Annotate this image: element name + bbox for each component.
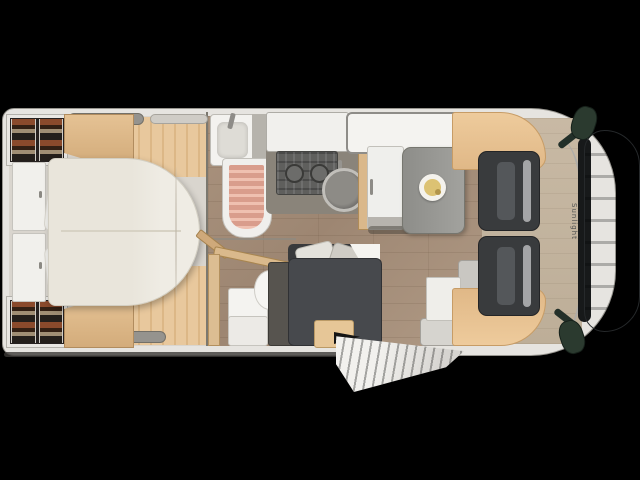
- plate-food-detail: [435, 189, 441, 195]
- seat-cushion: [497, 162, 515, 220]
- shower-mat: [229, 165, 264, 229]
- seat-cushion: [497, 247, 515, 305]
- plate-food: [424, 179, 441, 196]
- bathroom-partition-wall: [208, 238, 296, 240]
- island-bed: [48, 158, 200, 306]
- roof-window-icon: [150, 114, 208, 124]
- kitchen-worktop: [266, 112, 349, 152]
- cabinet-handle-icon: [39, 262, 42, 269]
- body-shadow-skirt: [4, 352, 340, 357]
- wardrobe-clothes: [10, 118, 64, 162]
- headboard-cabinet-top: [12, 162, 46, 231]
- toilet-side-shelf: [208, 254, 220, 346]
- plate: [419, 174, 446, 201]
- shower-tray: [222, 158, 272, 238]
- cabinet-handle-icon: [370, 179, 373, 195]
- seat-headrest: [523, 245, 531, 307]
- passenger-seat: [478, 236, 540, 316]
- headboard-cabinet-bottom: [12, 233, 46, 302]
- driver-seat: [478, 151, 540, 231]
- toilet-base: [228, 316, 268, 346]
- duvet-fold: [175, 167, 177, 297]
- bed-seam: [61, 230, 181, 232]
- brand-lettering: Sunlight: [567, 203, 578, 277]
- cabinet-handle-icon: [39, 191, 42, 198]
- motorhome-floorplan-image: Sunlight: [0, 0, 640, 480]
- seat-headrest: [523, 160, 531, 222]
- washbasin: [217, 122, 248, 158]
- fridge-cabinet: [367, 146, 404, 230]
- burner-icon: [285, 164, 304, 183]
- vehicle-hood: [584, 130, 640, 332]
- wardrobe-clothes: [10, 300, 64, 344]
